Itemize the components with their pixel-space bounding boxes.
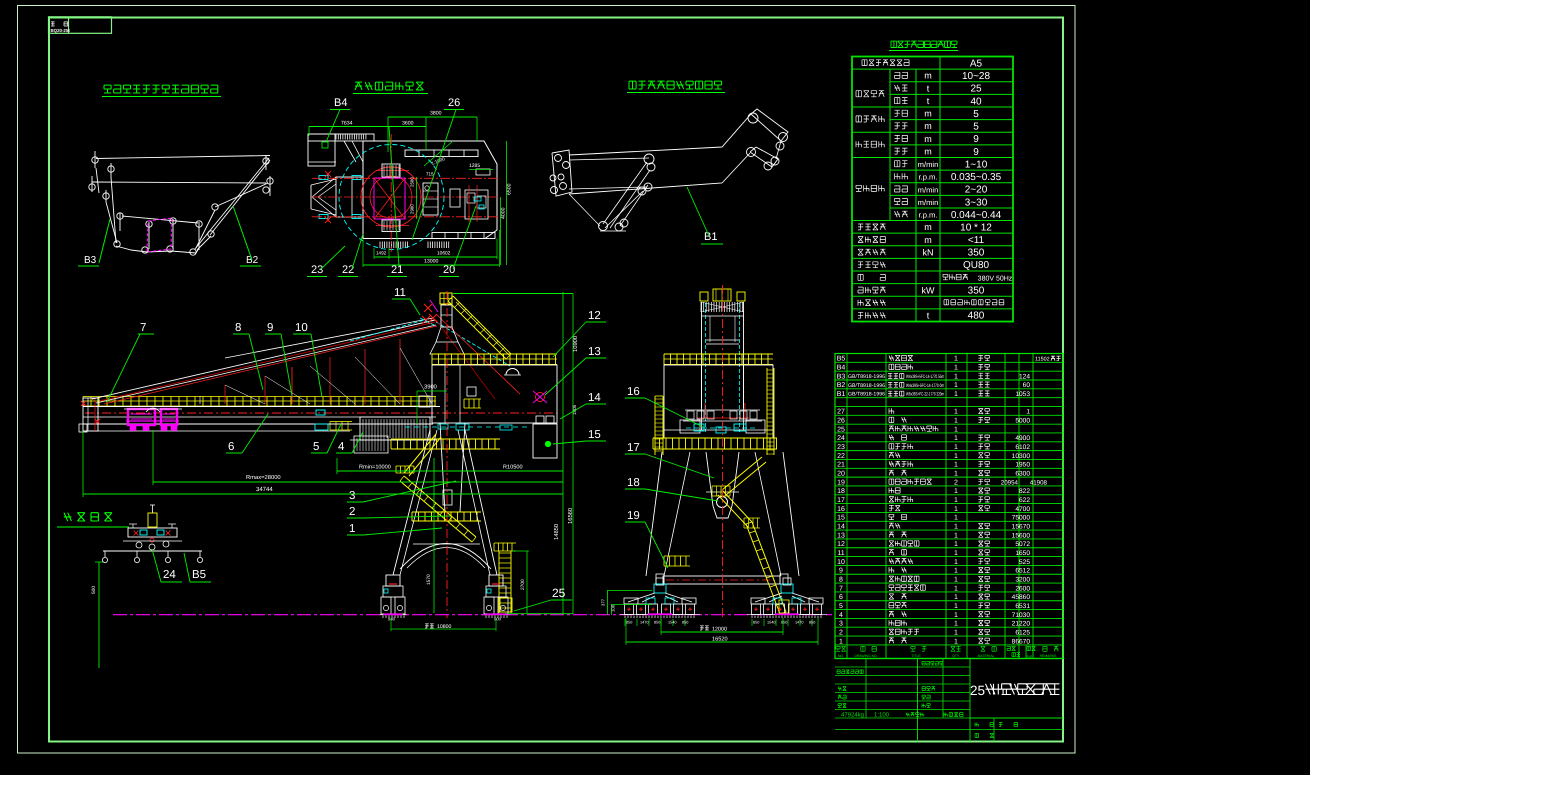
svg-text:60: 60 bbox=[1023, 382, 1031, 389]
svg-text:A5: A5 bbox=[970, 59, 983, 70]
svg-text:Rmax=28000: Rmax=28000 bbox=[246, 474, 281, 481]
svg-text:25: 25 bbox=[552, 586, 566, 600]
svg-text:25: 25 bbox=[837, 426, 845, 433]
svg-text:1: 1 bbox=[954, 382, 958, 389]
svg-text:16560: 16560 bbox=[567, 508, 574, 524]
svg-text:5000: 5000 bbox=[1015, 418, 1030, 425]
svg-text:11502: 11502 bbox=[1035, 357, 1050, 363]
svg-text:21: 21 bbox=[391, 264, 403, 276]
svg-text:9: 9 bbox=[973, 134, 979, 145]
svg-text:BQ20-25t: BQ20-25t bbox=[51, 28, 71, 33]
svg-text:350: 350 bbox=[968, 248, 985, 259]
svg-text:m: m bbox=[924, 121, 932, 131]
svg-text:1: 1 bbox=[954, 453, 958, 460]
svg-text:20954: 20954 bbox=[1001, 479, 1019, 486]
svg-text:14850: 14850 bbox=[553, 524, 560, 540]
svg-text:W4x39S+5FC-14-1770 0m: W4x39S+5FC-14-1770 0m bbox=[906, 383, 944, 389]
svg-text:m/min: m/min bbox=[918, 160, 939, 169]
svg-text:DRAWING NO.: DRAWING NO. bbox=[854, 654, 877, 658]
svg-text:r.p.m.: r.p.m. bbox=[919, 173, 938, 182]
svg-text:1285: 1285 bbox=[469, 163, 480, 169]
svg-text:1: 1 bbox=[954, 585, 958, 592]
svg-text:B2: B2 bbox=[246, 255, 259, 266]
svg-text:3: 3 bbox=[839, 621, 843, 628]
svg-text:1: 1 bbox=[954, 638, 958, 645]
svg-text:2980: 2980 bbox=[410, 204, 415, 214]
svg-text:6500: 6500 bbox=[507, 183, 513, 195]
svg-text:12: 12 bbox=[588, 310, 601, 322]
svg-text:47924kg: 47924kg bbox=[841, 712, 864, 719]
svg-text:7: 7 bbox=[140, 322, 146, 334]
svg-text:6: 6 bbox=[839, 594, 843, 601]
svg-text:24: 24 bbox=[837, 435, 845, 442]
svg-text:10800: 10800 bbox=[437, 624, 452, 630]
svg-text:1: 1 bbox=[954, 603, 958, 610]
svg-text:1: 1 bbox=[1026, 409, 1030, 416]
svg-text:5: 5 bbox=[313, 441, 319, 453]
svg-text:0.035~0.35: 0.035~0.35 bbox=[951, 172, 1002, 183]
svg-text:525: 525 bbox=[1019, 559, 1030, 566]
svg-text:850: 850 bbox=[809, 621, 815, 625]
svg-text:34744: 34744 bbox=[256, 486, 273, 493]
svg-text:1: 1 bbox=[954, 550, 958, 557]
svg-text:1: 1 bbox=[954, 444, 958, 451]
svg-text:TITLE: TITLE bbox=[911, 654, 921, 658]
svg-text:3200: 3200 bbox=[1015, 576, 1030, 583]
svg-text:1: 1 bbox=[954, 559, 958, 566]
svg-text:3600: 3600 bbox=[402, 121, 414, 127]
svg-text:Rmin=10000: Rmin=10000 bbox=[359, 464, 391, 471]
svg-text:1: 1 bbox=[954, 497, 958, 504]
svg-text:<11: <11 bbox=[968, 235, 985, 246]
svg-text:4900: 4900 bbox=[1015, 435, 1030, 442]
svg-text:B3: B3 bbox=[84, 255, 97, 266]
svg-text:13: 13 bbox=[837, 532, 845, 539]
svg-text:75000: 75000 bbox=[1012, 515, 1031, 522]
svg-text:1: 1 bbox=[954, 356, 958, 363]
svg-text:m/min: m/min bbox=[918, 185, 939, 194]
svg-text:1540: 1540 bbox=[668, 621, 676, 625]
svg-text:1: 1 bbox=[954, 418, 958, 425]
svg-text:10 * 12: 10 * 12 bbox=[960, 222, 992, 233]
svg-text:1: 1 bbox=[954, 594, 958, 601]
svg-text:NO.: NO. bbox=[838, 654, 844, 658]
svg-text:22: 22 bbox=[342, 264, 354, 276]
svg-text:18: 18 bbox=[837, 488, 845, 495]
svg-text:8: 8 bbox=[235, 322, 241, 334]
svg-text:1: 1 bbox=[954, 470, 958, 477]
svg-text:9: 9 bbox=[267, 322, 273, 334]
svg-text:4: 4 bbox=[839, 612, 843, 619]
svg-text:1: 1 bbox=[954, 506, 958, 513]
svg-text:1492: 1492 bbox=[376, 251, 387, 256]
svg-text:2~20: 2~20 bbox=[965, 185, 988, 196]
svg-text:W4x39S+5FC-14-1770 55m: W4x39S+5FC-14-1770 55m bbox=[906, 374, 944, 380]
svg-text:B4: B4 bbox=[334, 97, 347, 109]
svg-text:5: 5 bbox=[973, 109, 979, 120]
svg-text:5: 5 bbox=[973, 122, 979, 133]
svg-text:4000: 4000 bbox=[501, 207, 507, 219]
svg-text:10602: 10602 bbox=[437, 251, 451, 257]
svg-text:16520: 16520 bbox=[712, 637, 728, 643]
svg-text:21: 21 bbox=[837, 462, 845, 469]
svg-text:1: 1 bbox=[954, 391, 958, 398]
svg-text:15670: 15670 bbox=[1012, 523, 1031, 530]
svg-text:3800: 3800 bbox=[430, 111, 442, 117]
svg-text:15600: 15600 bbox=[1012, 532, 1031, 539]
svg-text:m: m bbox=[924, 134, 932, 144]
svg-text:22: 22 bbox=[837, 453, 845, 460]
svg-text:1: 1 bbox=[954, 435, 958, 442]
svg-text:7: 7 bbox=[839, 585, 843, 592]
svg-text:380V 50Hz: 380V 50Hz bbox=[978, 275, 1013, 282]
svg-text:15: 15 bbox=[588, 429, 601, 441]
svg-text:40: 40 bbox=[970, 96, 982, 107]
svg-text:26: 26 bbox=[448, 97, 460, 109]
svg-text:10: 10 bbox=[837, 559, 845, 566]
svg-text:1: 1 bbox=[954, 373, 958, 380]
svg-text:2: 2 bbox=[349, 506, 355, 518]
svg-text:B3: B3 bbox=[837, 373, 846, 380]
svg-text:GB/T8918-1996: GB/T8918-1996 bbox=[848, 374, 885, 380]
svg-text:1: 1 bbox=[954, 612, 958, 619]
svg-text:25: 25 bbox=[970, 84, 982, 95]
svg-text:(kg): (kg) bbox=[1026, 654, 1032, 658]
svg-text:480: 480 bbox=[968, 311, 985, 322]
svg-text:2580: 2580 bbox=[410, 177, 415, 187]
svg-text:1053: 1053 bbox=[1015, 391, 1030, 398]
svg-text:1: 1 bbox=[839, 638, 843, 645]
svg-text:822: 822 bbox=[1019, 488, 1030, 495]
svg-text:1470: 1470 bbox=[795, 621, 803, 625]
svg-text:r.p.m.: r.p.m. bbox=[919, 211, 938, 220]
svg-text:23: 23 bbox=[311, 264, 323, 276]
svg-text:86670: 86670 bbox=[1012, 638, 1031, 645]
svg-text:B5: B5 bbox=[192, 569, 206, 581]
svg-text:2600: 2600 bbox=[1015, 585, 1030, 592]
svg-text:9: 9 bbox=[839, 568, 843, 575]
svg-text:6102: 6102 bbox=[1015, 444, 1030, 451]
svg-text:108: 108 bbox=[611, 604, 616, 612]
svg-text:kN: kN bbox=[923, 247, 934, 257]
svg-text:1: 1 bbox=[954, 621, 958, 628]
svg-text:3900: 3900 bbox=[424, 384, 437, 391]
svg-text:11: 11 bbox=[394, 287, 406, 299]
svg-text:1540: 1540 bbox=[767, 621, 775, 625]
svg-text:11: 11 bbox=[837, 550, 844, 557]
svg-text:15: 15 bbox=[837, 515, 845, 522]
svg-text:3: 3 bbox=[349, 490, 355, 502]
svg-text:0.044~0.44: 0.044~0.44 bbox=[951, 210, 1002, 221]
svg-text:25: 25 bbox=[970, 683, 985, 698]
svg-text:kW: kW bbox=[922, 285, 936, 295]
svg-text:850: 850 bbox=[654, 621, 660, 625]
svg-text:1: 1 bbox=[954, 488, 958, 495]
svg-text:10~28: 10~28 bbox=[962, 71, 991, 82]
svg-text:m: m bbox=[924, 146, 932, 156]
svg-text:900: 900 bbox=[494, 617, 502, 622]
svg-text:17: 17 bbox=[627, 442, 640, 454]
svg-text:20: 20 bbox=[837, 470, 845, 477]
svg-text:B5: B5 bbox=[837, 356, 846, 363]
svg-text:6125: 6125 bbox=[1015, 629, 1030, 636]
svg-text:10300: 10300 bbox=[1012, 453, 1031, 460]
svg-text:1: 1 bbox=[954, 515, 958, 522]
svg-text:1: 1 bbox=[954, 523, 958, 530]
svg-text:940: 940 bbox=[388, 617, 396, 622]
svg-text:14: 14 bbox=[588, 392, 601, 404]
svg-text:41908: 41908 bbox=[1030, 479, 1048, 486]
svg-text:7634: 7634 bbox=[341, 121, 353, 127]
svg-text:27: 27 bbox=[837, 409, 845, 416]
svg-text:6512: 6512 bbox=[1015, 568, 1030, 575]
svg-text:24: 24 bbox=[163, 569, 176, 581]
svg-text:QTY.: QTY. bbox=[952, 654, 960, 658]
svg-text:26: 26 bbox=[837, 418, 845, 425]
svg-text:m: m bbox=[924, 71, 932, 81]
svg-text:B1: B1 bbox=[704, 231, 717, 243]
svg-text:1: 1 bbox=[954, 541, 958, 548]
svg-text:1: 1 bbox=[954, 568, 958, 575]
svg-text:20: 20 bbox=[443, 264, 455, 276]
svg-text:2: 2 bbox=[954, 479, 958, 486]
svg-text:4: 4 bbox=[338, 441, 345, 453]
svg-text:19: 19 bbox=[837, 479, 845, 486]
svg-text:1470: 1470 bbox=[640, 621, 648, 625]
svg-text:1: 1 bbox=[954, 629, 958, 636]
svg-text:W6x36S+FC-22-1770 320m: W6x36S+FC-22-1770 320m bbox=[906, 392, 944, 398]
svg-text:m: m bbox=[924, 235, 932, 245]
svg-text:850: 850 bbox=[626, 621, 632, 625]
svg-text:m: m bbox=[924, 222, 932, 232]
svg-text:B4: B4 bbox=[837, 365, 846, 372]
svg-text:m/min: m/min bbox=[918, 198, 939, 207]
svg-text:6: 6 bbox=[228, 441, 234, 453]
svg-text:715: 715 bbox=[426, 172, 434, 177]
svg-text:m: m bbox=[924, 109, 932, 119]
svg-text:850: 850 bbox=[753, 621, 759, 625]
svg-text:1570: 1570 bbox=[426, 574, 432, 585]
svg-text:500: 500 bbox=[91, 586, 97, 594]
svg-text:12000: 12000 bbox=[712, 627, 727, 633]
svg-text:16: 16 bbox=[837, 506, 845, 513]
svg-text:850: 850 bbox=[682, 621, 688, 625]
svg-text:1~10: 1~10 bbox=[965, 159, 988, 170]
svg-text:MATERIAL: MATERIAL bbox=[978, 654, 995, 658]
svg-text:1650: 1650 bbox=[1015, 550, 1030, 557]
svg-text:1: 1 bbox=[954, 365, 958, 372]
svg-text:377: 377 bbox=[601, 598, 606, 606]
svg-text:45860: 45860 bbox=[1012, 594, 1031, 601]
svg-text:17: 17 bbox=[837, 497, 845, 504]
svg-text:9: 9 bbox=[973, 147, 979, 158]
svg-text:124: 124 bbox=[1019, 373, 1030, 380]
svg-text:12: 12 bbox=[837, 541, 845, 548]
svg-text:REMARKS: REMARKS bbox=[1040, 654, 1058, 658]
svg-text:23: 23 bbox=[837, 444, 845, 451]
svg-text:GB/T8918-1996: GB/T8918-1996 bbox=[848, 392, 885, 398]
svg-text:18: 18 bbox=[627, 477, 640, 489]
svg-text:16: 16 bbox=[627, 386, 640, 398]
svg-text:6531: 6531 bbox=[1015, 603, 1030, 610]
svg-text:B1: B1 bbox=[837, 391, 846, 398]
svg-text:3~30: 3~30 bbox=[965, 197, 988, 208]
svg-text:850: 850 bbox=[781, 621, 787, 625]
svg-text:2: 2 bbox=[839, 629, 843, 636]
svg-text:B2: B2 bbox=[837, 382, 846, 389]
svg-text:2700: 2700 bbox=[520, 579, 526, 590]
svg-text:19: 19 bbox=[627, 510, 640, 522]
svg-text:350: 350 bbox=[968, 285, 985, 296]
svg-text:1: 1 bbox=[954, 462, 958, 469]
svg-text:1:100: 1:100 bbox=[874, 712, 890, 719]
svg-text:R10500: R10500 bbox=[503, 465, 523, 471]
svg-text:QU80: QU80 bbox=[963, 260, 990, 271]
svg-text:5: 5 bbox=[839, 603, 843, 610]
svg-text:5072: 5072 bbox=[1015, 541, 1030, 548]
svg-text:1: 1 bbox=[349, 523, 355, 535]
svg-text:1950: 1950 bbox=[1015, 462, 1030, 469]
svg-text:1: 1 bbox=[954, 409, 958, 416]
svg-text:13: 13 bbox=[588, 346, 601, 358]
svg-text:8: 8 bbox=[839, 576, 843, 583]
svg-text:21220: 21220 bbox=[1012, 621, 1031, 628]
svg-text:6300: 6300 bbox=[1015, 470, 1030, 477]
svg-text:GB/T8918-1996: GB/T8918-1996 bbox=[848, 383, 885, 389]
svg-text:14: 14 bbox=[837, 523, 845, 530]
svg-text:1: 1 bbox=[954, 426, 958, 433]
svg-text:622: 622 bbox=[1019, 497, 1030, 504]
svg-text:10900: 10900 bbox=[572, 336, 579, 352]
svg-text:1: 1 bbox=[954, 576, 958, 583]
svg-text:1: 1 bbox=[954, 532, 958, 539]
svg-text:4700: 4700 bbox=[1015, 506, 1030, 513]
svg-text:13000: 13000 bbox=[424, 259, 439, 265]
svg-text:71030: 71030 bbox=[1012, 612, 1031, 619]
svg-text:10: 10 bbox=[295, 322, 308, 334]
